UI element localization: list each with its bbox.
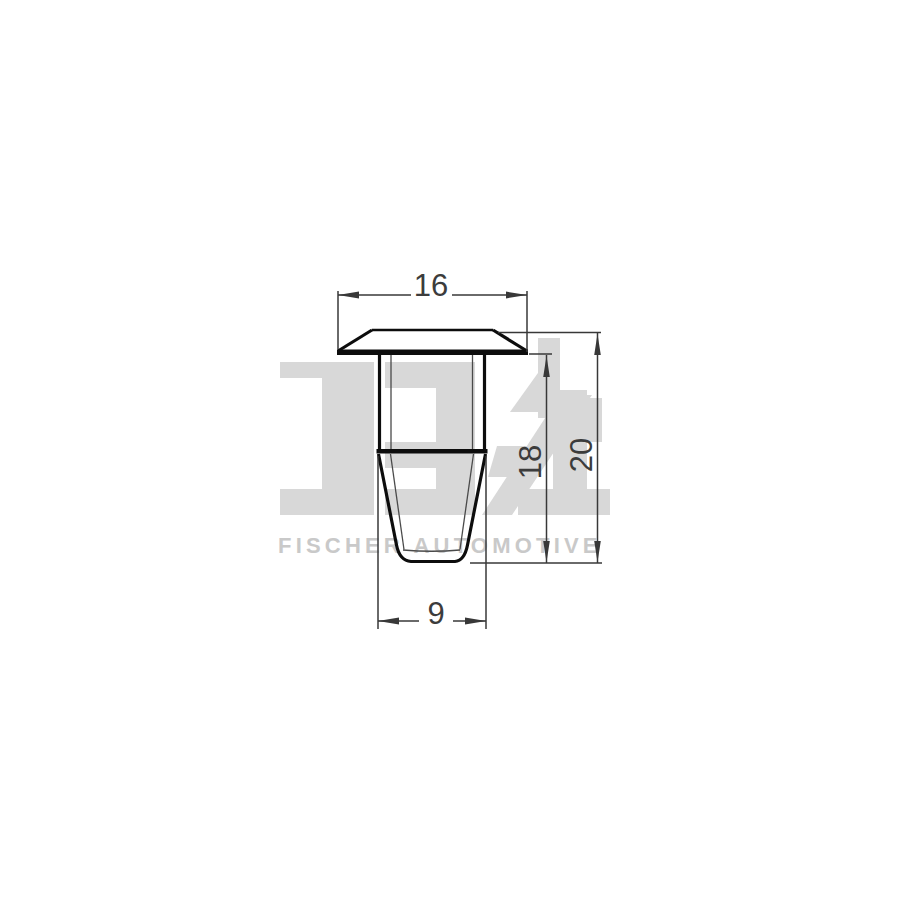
dim-label-total-height: 20 [564, 438, 599, 472]
watermark-letter-a-left [381, 362, 475, 515]
dimension-head-width: 16 [338, 268, 527, 352]
clip-dimension-drawing: FISCHER AUTOMOTIVE [0, 0, 900, 900]
watermark-letter-f [276, 362, 374, 515]
dim-label-tip-width: 9 [427, 596, 444, 631]
clip-head [337, 330, 528, 355]
watermark-fa1-logo: FISCHER AUTOMOTIVE [276, 338, 610, 558]
technical-drawing-canvas: FISCHER AUTOMOTIVE [0, 0, 900, 900]
watermark-caption: FISCHER AUTOMOTIVE [278, 533, 602, 558]
dim-label-head-width: 16 [414, 268, 448, 303]
dim-label-shank-height: 18 [513, 445, 548, 479]
